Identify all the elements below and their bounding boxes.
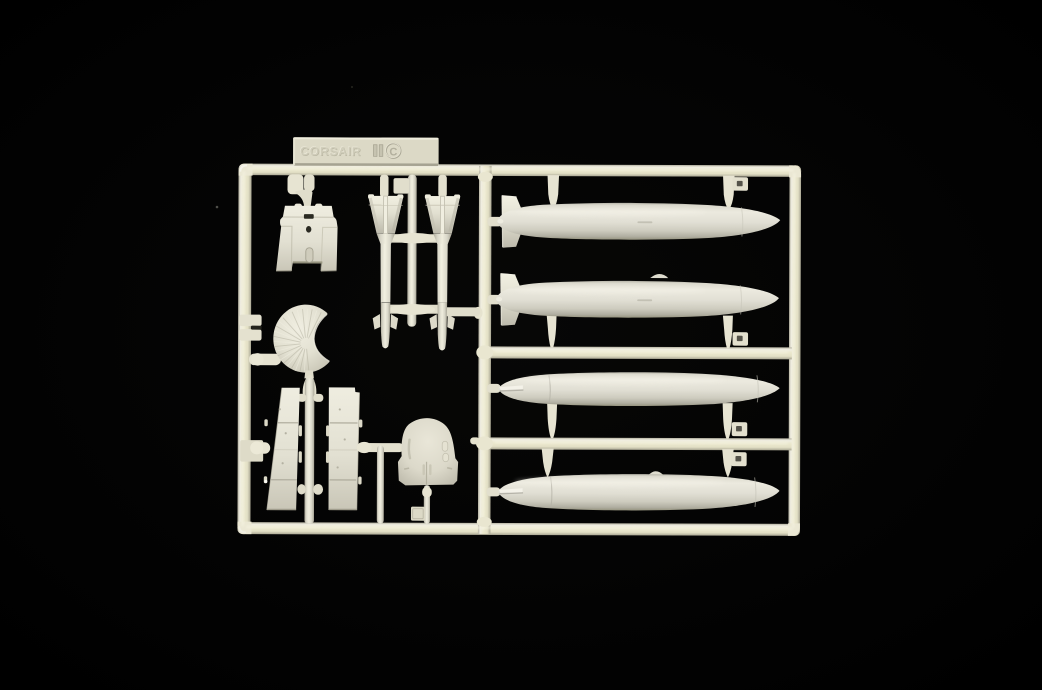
svg-text:CORSAIR: CORSAIR [300, 144, 361, 158]
svg-text:C: C [389, 146, 397, 158]
